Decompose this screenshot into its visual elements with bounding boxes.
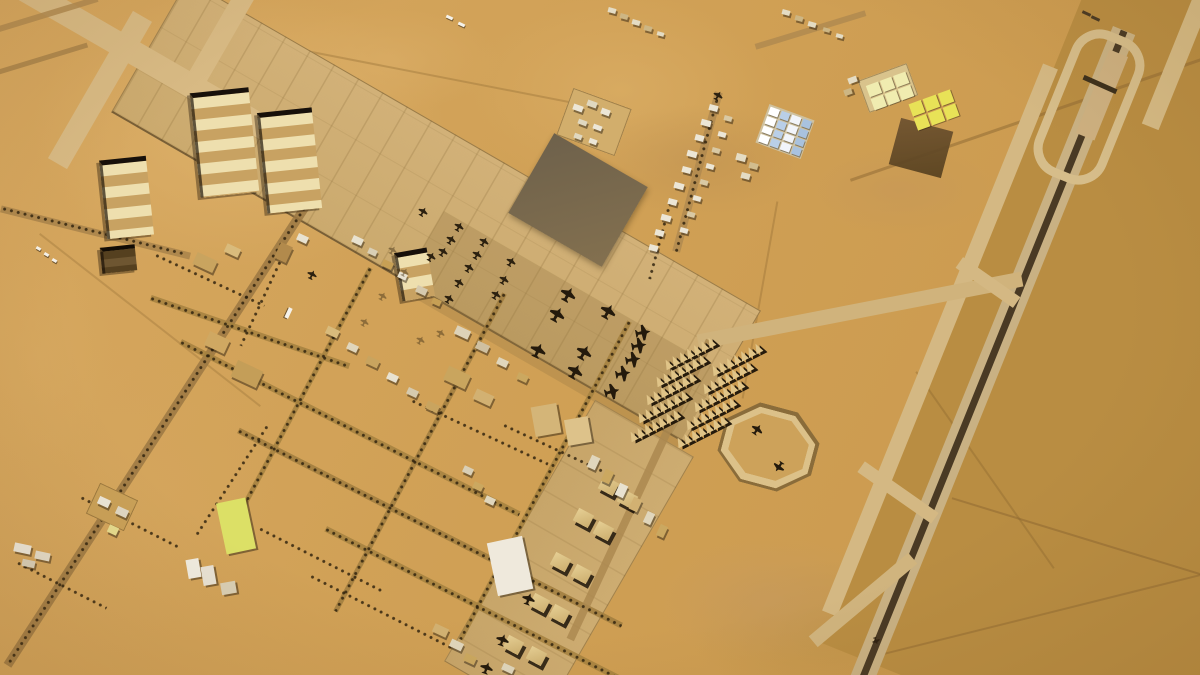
building bbox=[847, 76, 858, 85]
tent-grid-cell bbox=[761, 124, 773, 135]
building bbox=[424, 401, 439, 414]
building bbox=[654, 229, 664, 237]
building bbox=[220, 581, 237, 595]
tent-grid-cell bbox=[758, 134, 770, 145]
building bbox=[472, 388, 494, 406]
faint-aircraft-icon bbox=[414, 334, 426, 346]
tent-grid-cell bbox=[775, 119, 787, 130]
hangar bbox=[190, 87, 260, 198]
tent-grid-cell bbox=[779, 110, 791, 121]
satellite-image bbox=[0, 0, 1200, 675]
yellow-roof-group-cell bbox=[942, 103, 959, 120]
tent-grid-cell bbox=[783, 132, 795, 143]
yellow-roof-group-cell bbox=[928, 109, 945, 126]
building bbox=[516, 372, 529, 383]
building bbox=[431, 623, 448, 637]
building bbox=[474, 341, 489, 354]
building bbox=[564, 416, 592, 446]
tent-grid-cell bbox=[800, 118, 812, 129]
building bbox=[843, 88, 853, 96]
tent-grid-cell bbox=[794, 136, 806, 147]
tent-grid-cell bbox=[786, 123, 798, 134]
building bbox=[200, 565, 216, 586]
building bbox=[496, 357, 509, 368]
building bbox=[462, 465, 474, 476]
tent-grid-cell bbox=[780, 141, 792, 152]
hangar bbox=[257, 107, 322, 213]
building bbox=[835, 33, 843, 39]
building bbox=[794, 15, 803, 22]
building bbox=[781, 9, 790, 16]
tent-grid-cell bbox=[797, 127, 809, 138]
yellow-roof-group-cell bbox=[914, 114, 931, 131]
hangar bbox=[99, 156, 154, 239]
yellow-roof-group-cell bbox=[871, 95, 887, 111]
faint-aircraft-icon bbox=[358, 316, 370, 328]
tent-grid-cell bbox=[768, 106, 780, 117]
hangar bbox=[100, 244, 138, 274]
tent-grid-cell bbox=[772, 128, 784, 139]
building bbox=[406, 387, 419, 398]
yellow-roof-group-cell bbox=[884, 90, 900, 106]
yellow-roof-group-cell bbox=[898, 85, 914, 101]
building bbox=[531, 403, 562, 437]
building bbox=[364, 356, 379, 369]
building bbox=[185, 558, 201, 579]
tent-grid-cell bbox=[790, 114, 802, 125]
faint-aircraft-icon bbox=[434, 327, 446, 339]
tent-grid-cell bbox=[769, 138, 781, 149]
building bbox=[346, 342, 359, 353]
building bbox=[386, 372, 399, 383]
tent-grid-cell bbox=[765, 115, 777, 126]
tent-grid-cell bbox=[790, 145, 802, 156]
building bbox=[822, 27, 830, 33]
building bbox=[807, 21, 816, 28]
